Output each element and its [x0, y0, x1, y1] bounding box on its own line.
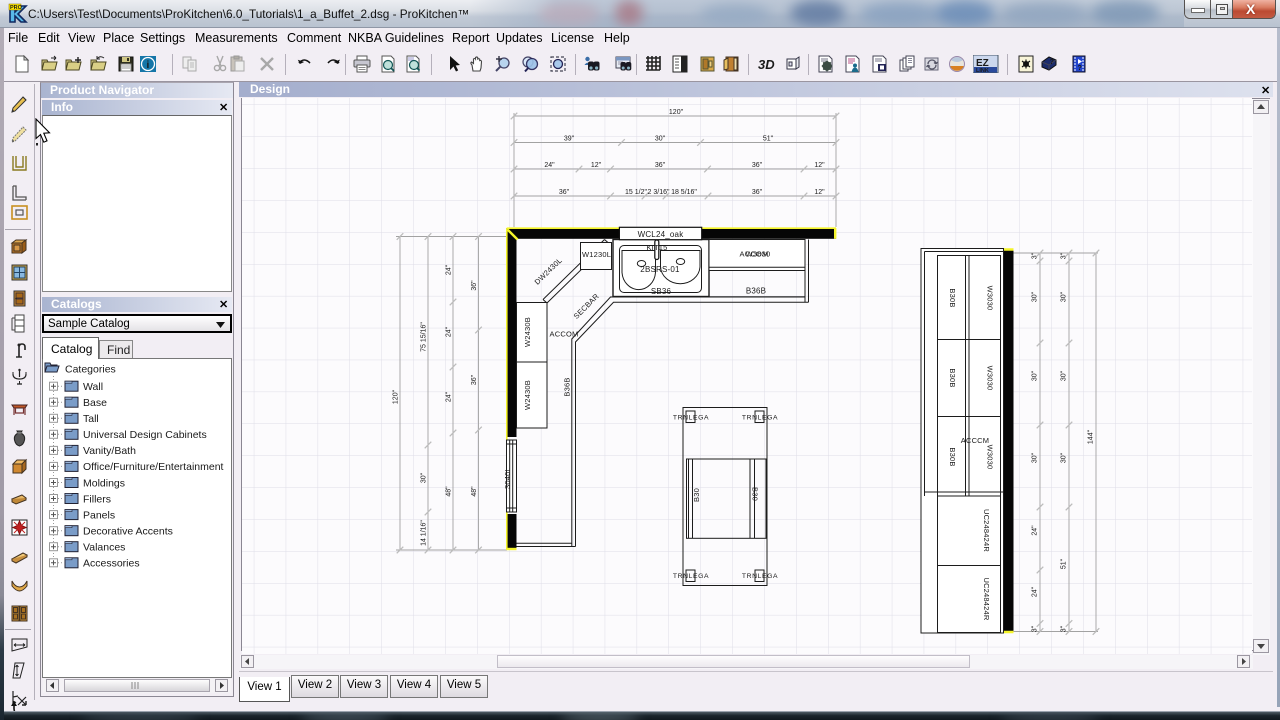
svg-text:48": 48": [446, 486, 453, 497]
svg-text:Moldings: Moldings: [83, 477, 125, 489]
svg-text:12": 12": [591, 162, 602, 169]
svg-text:36": 36": [752, 189, 763, 196]
svg-text:ACCCM: ACCCM: [961, 436, 990, 445]
svg-text:15 1/2": 15 1/2": [625, 189, 647, 196]
svg-text:18 5/16": 18 5/16": [671, 189, 697, 196]
svg-text:36": 36": [655, 162, 666, 169]
svg-text:LINK: LINK: [976, 68, 989, 73]
svg-text:B30B: B30B: [948, 288, 957, 307]
svg-text:12": 12": [814, 162, 825, 169]
svg-text:TRNLEGA: TRNLEGA: [742, 415, 778, 422]
svg-text:12": 12": [814, 189, 825, 196]
svg-text:36": 36": [559, 189, 570, 196]
svg-text:120": 120": [669, 109, 684, 116]
svg-text:24": 24": [446, 391, 453, 402]
svg-text:PRO: PRO: [10, 5, 23, 11]
svg-text:TRNLEGA: TRNLEGA: [742, 573, 778, 580]
svg-text:3040L: 3040L: [503, 467, 512, 489]
svg-text:Tall: Tall: [83, 413, 99, 425]
svg-text:24": 24": [1032, 586, 1039, 597]
svg-text:75 15/16": 75 15/16": [421, 322, 428, 352]
svg-text:TRNLEGA: TRNLEGA: [673, 573, 709, 580]
svg-text:36": 36": [752, 162, 763, 169]
svg-text:30": 30": [1032, 291, 1039, 302]
svg-text:KIT15: KIT15: [646, 243, 667, 252]
svg-text:Base: Base: [83, 397, 107, 409]
svg-text:30": 30": [1032, 370, 1039, 381]
svg-text:B36B: B36B: [563, 377, 572, 396]
svg-text:Vanity/Bath: Vanity/Bath: [83, 445, 136, 457]
svg-text:Fillers: Fillers: [83, 493, 111, 505]
svg-text:3": 3": [1061, 252, 1068, 259]
svg-text:W3030: W3030: [986, 366, 995, 391]
svg-text:B36B: B36B: [746, 287, 766, 296]
svg-text:Categories: Categories: [65, 364, 116, 376]
svg-text:W3030: W3030: [986, 286, 995, 311]
svg-text:3": 3": [1032, 625, 1039, 632]
svg-text:30": 30": [1061, 452, 1068, 463]
svg-text:B30: B30: [692, 488, 701, 502]
svg-text:SB36: SB36: [651, 287, 672, 296]
svg-text:51": 51": [763, 136, 774, 143]
svg-text:144": 144": [1088, 429, 1095, 444]
svg-text:WCL24_oak: WCL24_oak: [638, 230, 685, 239]
svg-text:Accessories: Accessories: [83, 558, 140, 570]
svg-text:?: ?: [1050, 59, 1054, 66]
svg-text:W3030: W3030: [986, 445, 995, 470]
svg-text:36": 36": [471, 280, 478, 291]
svg-text:51": 51": [1061, 558, 1068, 569]
svg-text:39": 39": [564, 136, 575, 143]
svg-text:B30: B30: [751, 487, 760, 501]
svg-text:Universal Design Cabinets: Universal Design Cabinets: [83, 429, 207, 441]
svg-text:ACCOM: ACCOM: [550, 330, 579, 339]
svg-text:UC248424R: UC248424R: [982, 577, 991, 620]
svg-text:B30B: B30B: [948, 447, 957, 466]
svg-text:2BSRS-01: 2BSRS-01: [640, 265, 680, 274]
svg-text:3": 3": [1061, 625, 1068, 632]
svg-text:3D: 3D: [758, 57, 775, 72]
svg-text:W2430B: W2430B: [523, 317, 532, 347]
svg-text:48": 48": [471, 486, 478, 497]
svg-text:3": 3": [1032, 252, 1039, 259]
svg-text:W2430B: W2430B: [523, 380, 532, 410]
svg-text:24": 24": [544, 162, 555, 169]
svg-text:UC248424R: UC248424R: [982, 509, 991, 552]
svg-text:120": 120": [393, 389, 400, 404]
svg-text:30": 30": [655, 136, 666, 143]
svg-text:W3630: W3630: [746, 250, 771, 259]
svg-text:30": 30": [1061, 291, 1068, 302]
svg-text:Decorative Accents: Decorative Accents: [83, 526, 173, 538]
svg-text:30": 30": [421, 472, 428, 483]
svg-text:i: i: [147, 60, 150, 71]
svg-text:36": 36": [471, 374, 478, 385]
svg-text:W1230L: W1230L: [582, 250, 611, 259]
svg-text:Office/Furniture/Entertainment: Office/Furniture/Entertainment: [83, 461, 224, 473]
svg-text:24": 24": [1032, 525, 1039, 536]
svg-text:Panels: Panels: [83, 509, 115, 521]
svg-text:TRNLEGA: TRNLEGA: [673, 415, 709, 422]
svg-text:30": 30": [1032, 452, 1039, 463]
svg-text:30": 30": [1061, 370, 1068, 381]
svg-text:24": 24": [446, 264, 453, 275]
svg-text:Valances: Valances: [83, 542, 125, 554]
svg-text:2 3/16": 2 3/16": [648, 189, 670, 196]
svg-text:14 1/16": 14 1/16": [421, 520, 428, 546]
svg-text:B30B: B30B: [948, 368, 957, 387]
svg-text:24": 24": [446, 326, 453, 337]
svg-text:Wall: Wall: [83, 381, 103, 393]
svg-text:?: ?: [1078, 65, 1082, 72]
